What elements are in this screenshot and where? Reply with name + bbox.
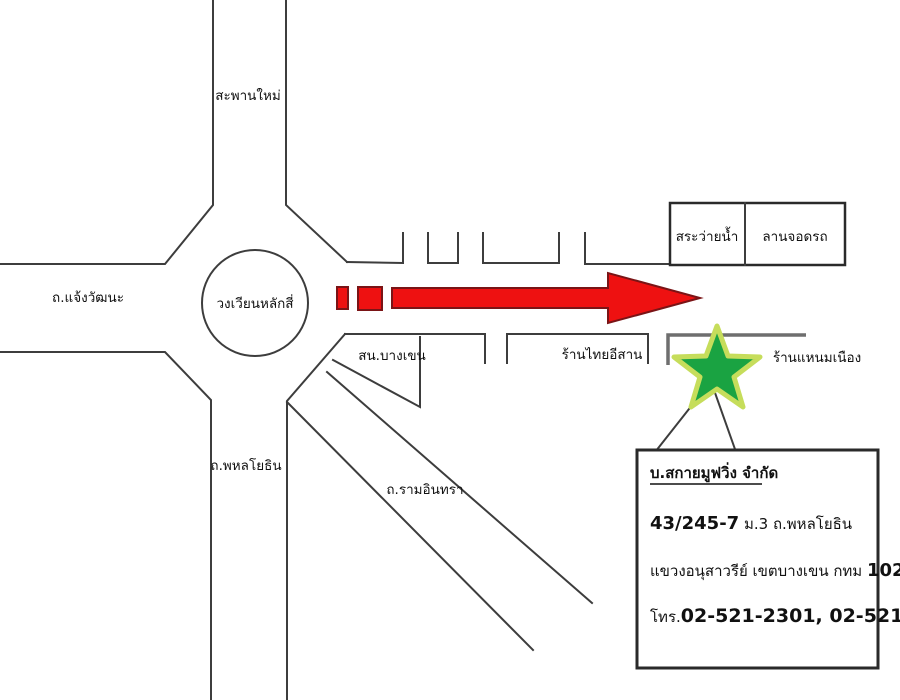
address-rest: ม.3 ถ.พหลโยธิน xyxy=(739,515,852,533)
label-parking-lot: ลานจอดรถ xyxy=(762,229,827,245)
label-swimming-pool: สระว่ายน้ำ xyxy=(676,226,739,245)
direction-map: สะพานใหม่ ถ.แจ้งวัฒนะ วงเวียนหลักสี่ ถ.พ… xyxy=(0,0,900,700)
label-thai-isan-shop: ร้านไทยอีสาน xyxy=(562,347,643,363)
label-naem-nueang-shop: ร้านแหนมเนือง xyxy=(773,350,861,366)
route-arrow-body xyxy=(392,273,700,323)
label-roundabout: วงเวียนหลักสี่ xyxy=(216,294,293,312)
phone-line: โทร.02-521-2301, 02-521-1856 xyxy=(650,605,900,627)
label-police-station: สน.บางเขน xyxy=(358,348,426,364)
route-dash-2 xyxy=(358,287,382,310)
company-name: บ.สกายมูฟวิ่ง จำกัด xyxy=(650,462,778,483)
label-phahonyothin-rd: ถ.พหลโยธิน xyxy=(210,457,281,474)
right-arrow-icon xyxy=(337,273,700,323)
postcode: 10220 xyxy=(867,560,900,581)
road-north-right-edge xyxy=(286,0,347,262)
road-west-bottom-edge xyxy=(0,352,211,700)
route-dash-1 xyxy=(337,287,348,309)
road-north-left-edge xyxy=(0,0,213,264)
label-saphan-mai: สะพานใหม่ xyxy=(215,87,281,104)
road-south-right-edge xyxy=(287,334,345,700)
info-box xyxy=(637,450,878,668)
ram-inthra-left-edge xyxy=(287,402,533,650)
phone-numbers: 02-521-2301, 02-521-1856 xyxy=(681,605,900,627)
label-chaengwattana-rd: ถ.แจ้งวัฒนะ xyxy=(52,290,124,306)
address-line: 43/245-7 ม.3 ถ.พหลโยธิน xyxy=(650,513,852,534)
district-text: แขวงอนุสาวรีย์ เขตบางเขน กทม xyxy=(650,562,867,581)
address-number: 43/245-7 xyxy=(650,513,739,534)
phone-label: โทร. xyxy=(650,608,681,626)
label-ram-inthra-rd: ถ.รามอินทรา xyxy=(386,482,463,498)
district-line: แขวงอนุสาวรีย์ เขตบางเขน กทม 10220 xyxy=(650,560,900,581)
star-icon xyxy=(674,326,760,407)
